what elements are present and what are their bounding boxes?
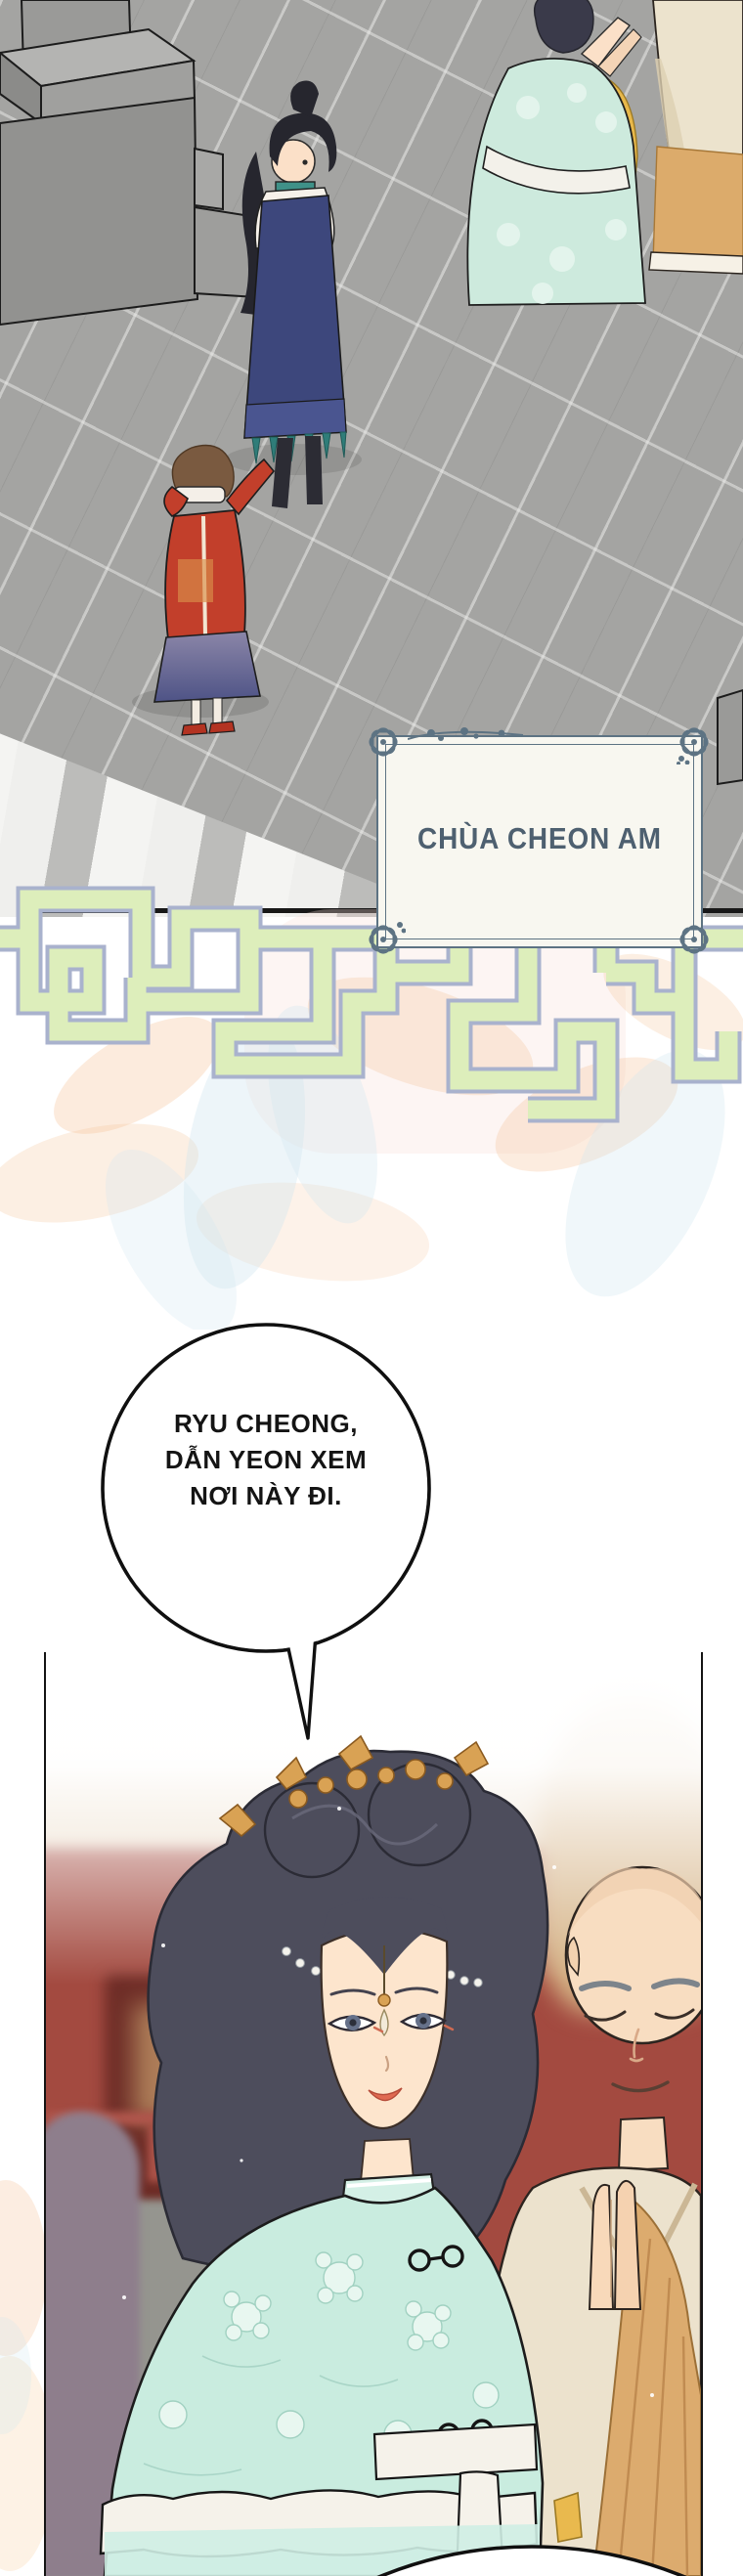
blossom-sprig-icon: [397, 922, 406, 933]
panel-figures: [46, 1652, 701, 2576]
speech-bubble: [0, 1290, 743, 1769]
margin-flowers: [0, 2151, 44, 2576]
lady-mint-front: [101, 1736, 582, 2576]
corner-knot-icon: [363, 721, 406, 764]
blossom-branch-icon: [408, 723, 525, 749]
bubble-line: NƠI NÀY ĐI.: [98, 1478, 434, 1514]
blossom-sprig-icon: [677, 756, 689, 764]
corner-knot-icon: [674, 919, 717, 962]
fur-trim-right: [374, 2424, 537, 2479]
right-page-margin: [699, 1652, 743, 2576]
girl-navy: [240, 81, 346, 509]
corner-knot-icon: [363, 919, 406, 962]
bottom-panel: [44, 1652, 703, 2576]
sign-text: CHÙA CHEON AM: [395, 821, 685, 856]
bubble-line: RYU CHEONG,: [98, 1406, 434, 1442]
speech-bubble-text: RYU CHEONG, DẪN YEON XEM NƠI NÀY ĐI.: [98, 1406, 434, 1514]
stone-pedestal: [718, 690, 743, 784]
comic-page: CHÙA CHEON AM RYU CHEONG, D: [0, 0, 743, 2576]
lady-mint-back: [467, 0, 645, 305]
monk-back: [649, 0, 743, 274]
sign-board: CHÙA CHEON AM: [376, 735, 703, 948]
stone-pillar: [0, 0, 256, 325]
child-red: [154, 446, 274, 736]
corner-knot-icon: [674, 721, 717, 764]
gold-underrobe-peek: [554, 2493, 582, 2542]
bubble-line: DẪN YEON XEM: [98, 1442, 434, 1478]
